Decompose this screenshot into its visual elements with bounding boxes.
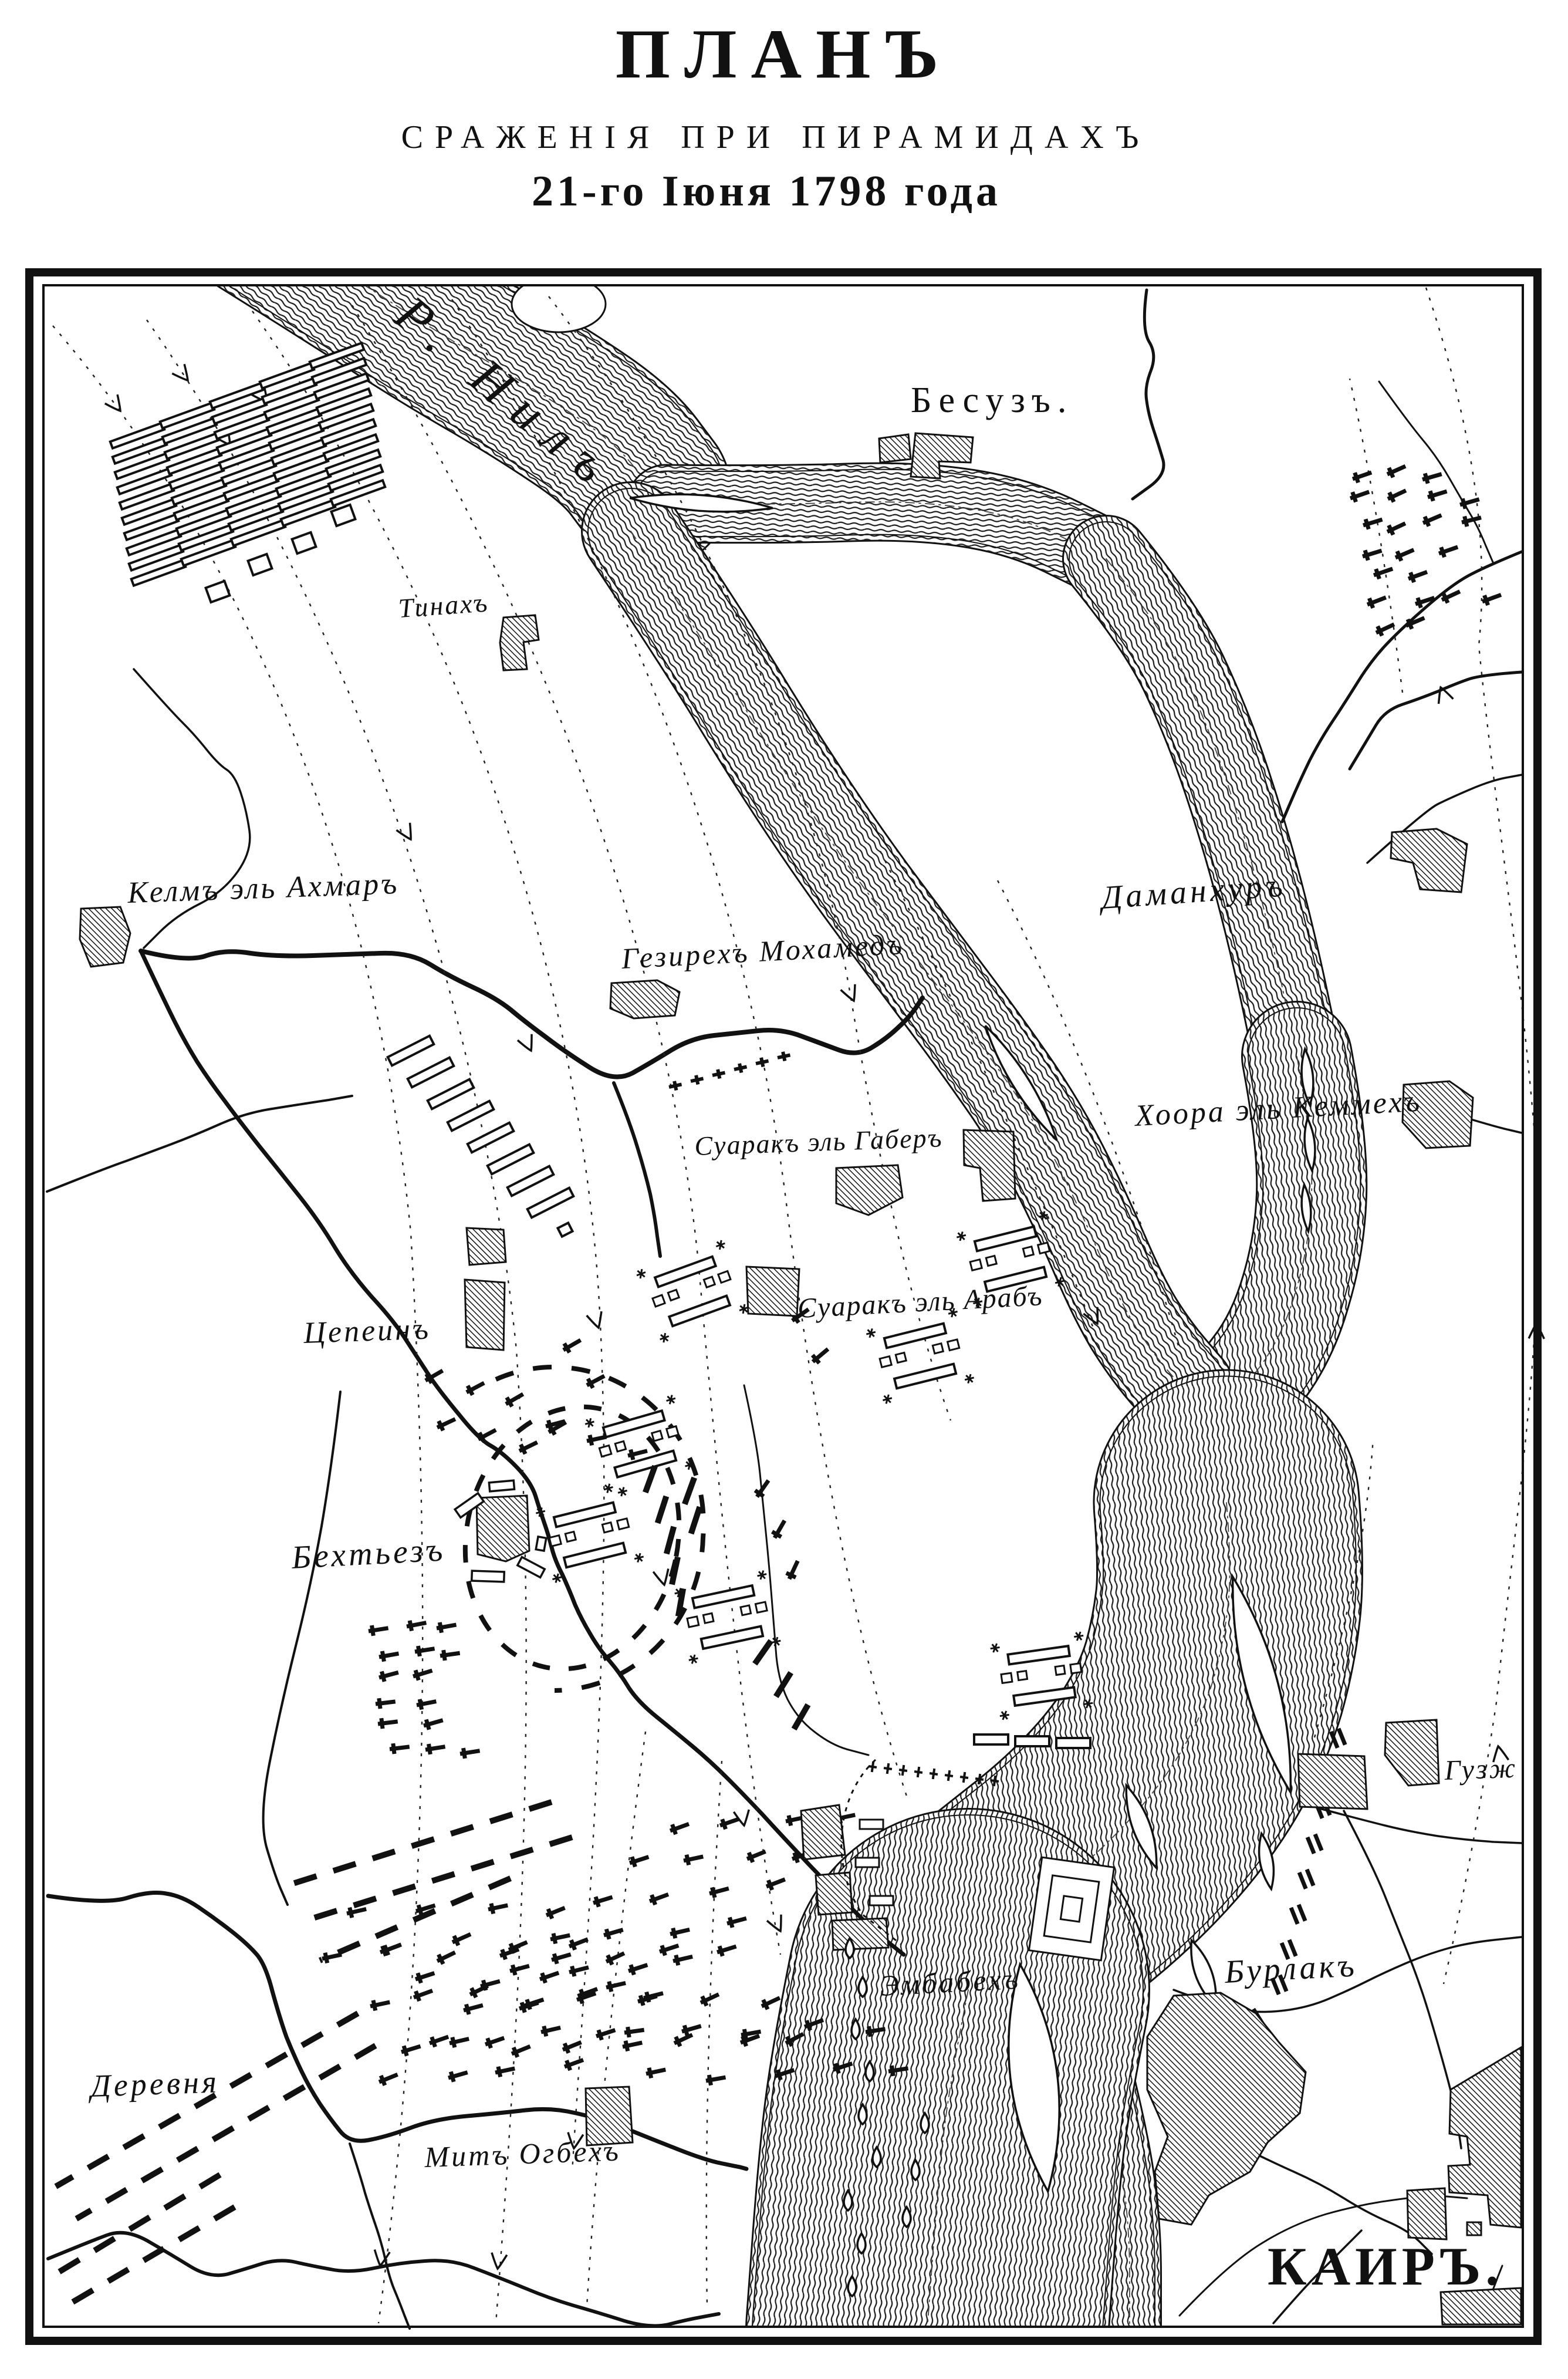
svg-text:Тинахъ: Тинахъ: [397, 587, 490, 623]
svg-text:Деревня: Деревня: [87, 2064, 220, 2104]
svg-text:КАИРЪ.: КАИРЪ.: [1268, 2236, 1503, 2296]
svg-text:Гузж: Гузж: [1444, 1753, 1518, 1786]
svg-text:СРАЖЕНІЯ ПРИ ПИРАМИДАХЪ: СРАЖЕНІЯ ПРИ ПИРАМИДАХЪ: [401, 119, 1151, 156]
svg-text:21-го Іюня 1798 года: 21-го Іюня 1798 года: [532, 167, 1001, 215]
svg-text:Цепеинъ: Цепеинъ: [302, 1312, 431, 1350]
svg-text:ПЛАНЪ: ПЛАНЪ: [616, 15, 953, 93]
svg-text:Бурлакъ: Бурлакъ: [1223, 1947, 1358, 1990]
svg-text:Митъ Огбехъ: Митъ Огбехъ: [423, 2134, 621, 2174]
svg-text:Бесузъ.: Бесузъ.: [911, 380, 1073, 420]
